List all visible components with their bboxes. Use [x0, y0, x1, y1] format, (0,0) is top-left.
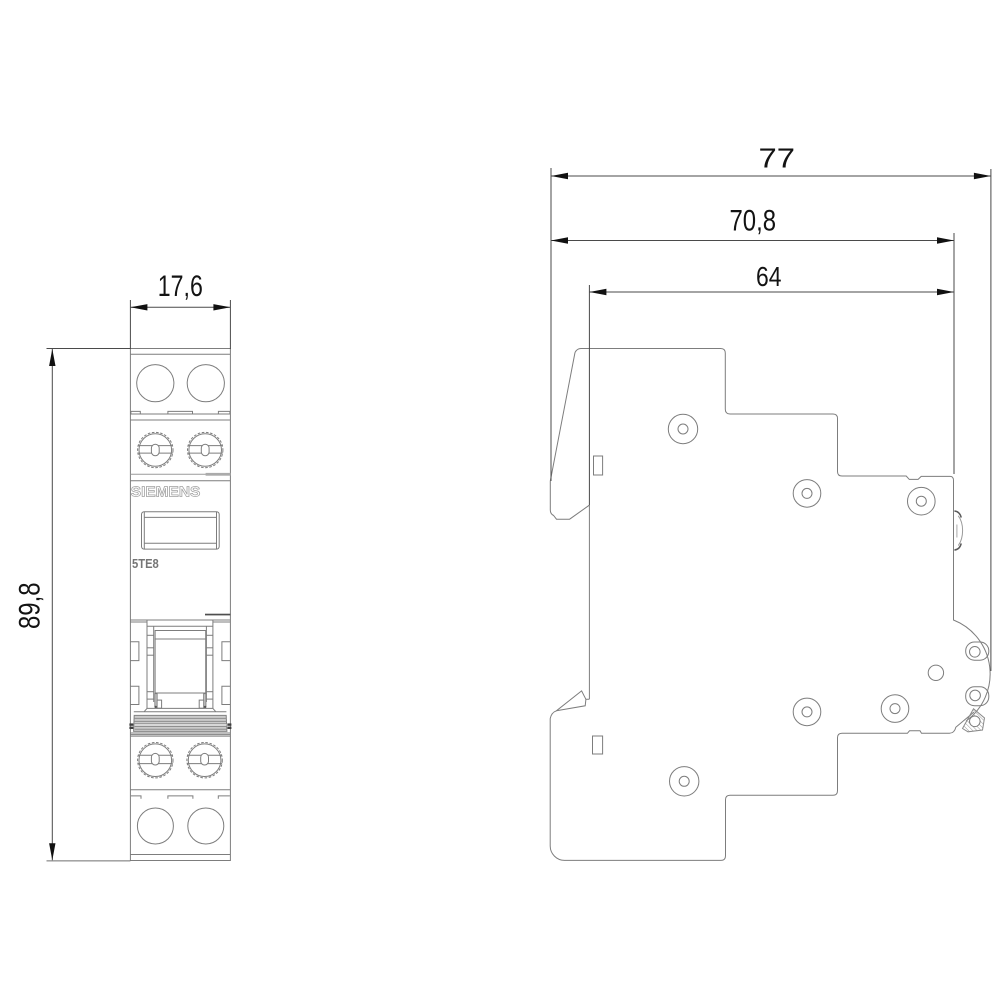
- svg-text:89,8: 89,8: [14, 583, 47, 630]
- svg-text:17,6: 17,6: [158, 270, 203, 303]
- svg-text:SIEMENS: SIEMENS: [131, 484, 201, 500]
- svg-text:64: 64: [756, 261, 782, 292]
- svg-text:5TE8: 5TE8: [132, 557, 159, 571]
- svg-text:70,8: 70,8: [730, 204, 777, 237]
- svg-text:77: 77: [759, 143, 796, 174]
